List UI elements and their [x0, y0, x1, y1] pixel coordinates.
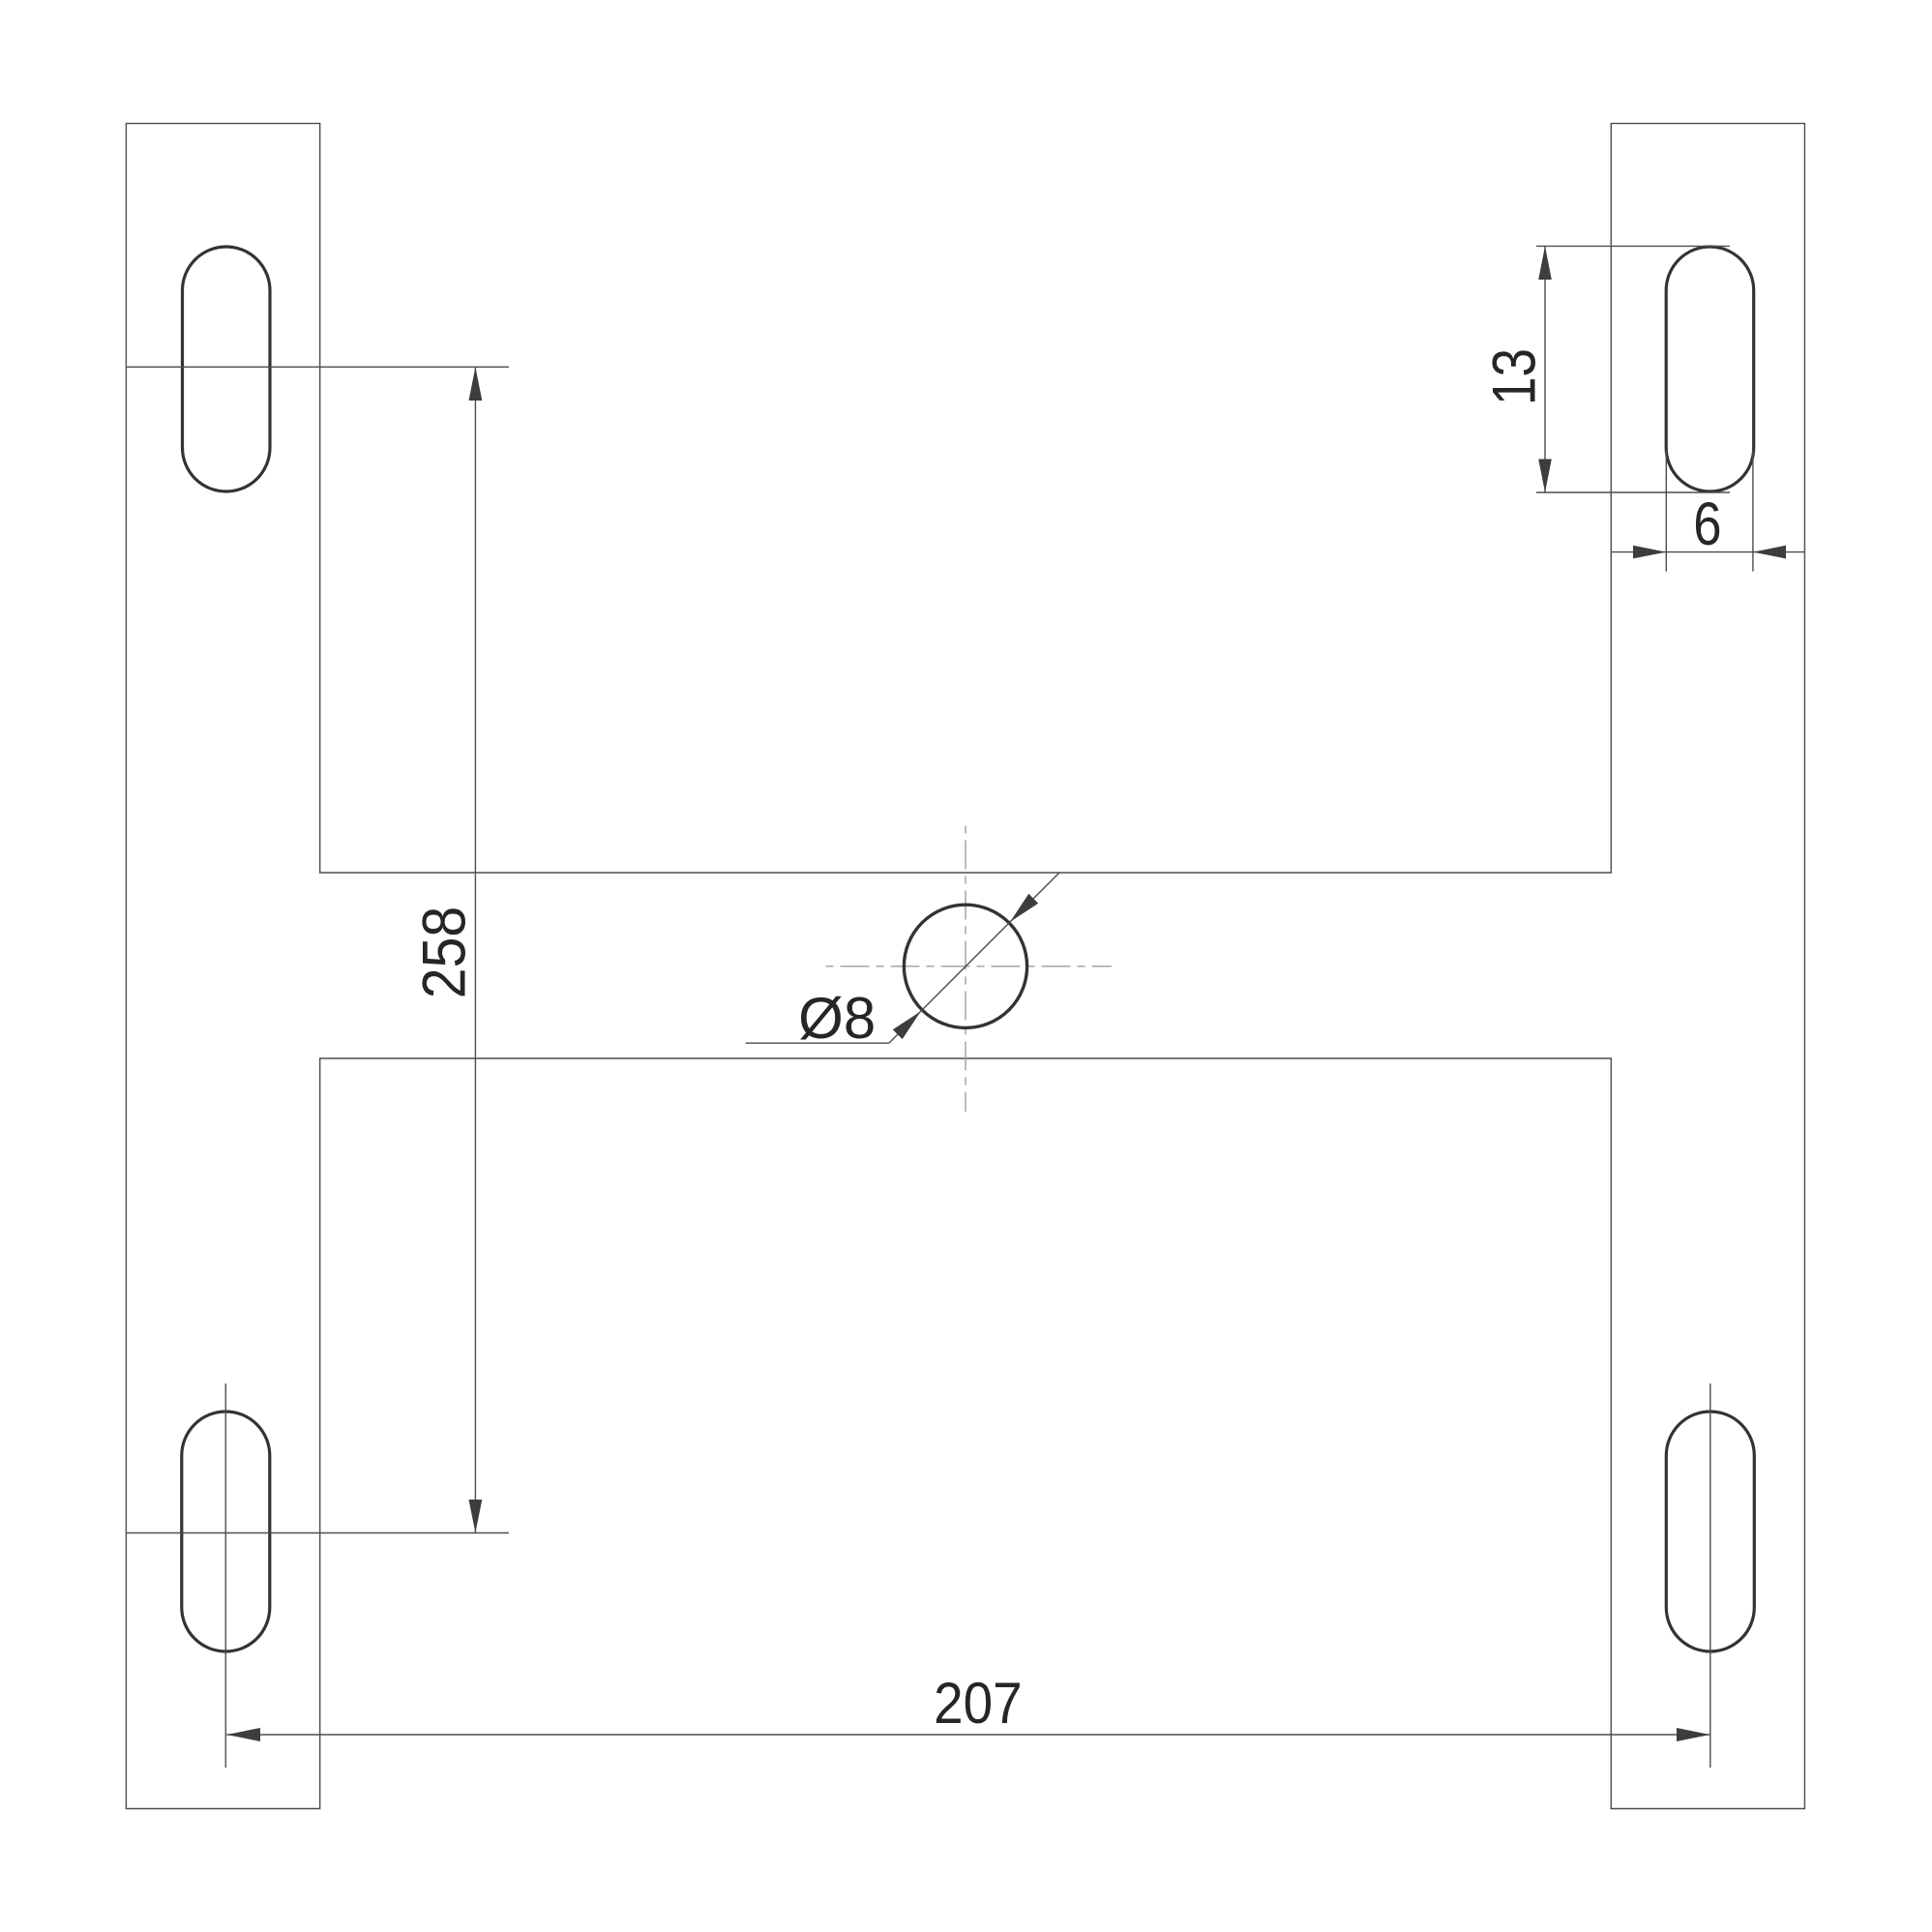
svg-text:258: 258 — [411, 907, 479, 998]
svg-text:6: 6 — [1693, 490, 1721, 558]
svg-text:Ø8: Ø8 — [798, 986, 876, 1051]
svg-text:207: 207 — [934, 1670, 1023, 1736]
svg-text:13: 13 — [1481, 348, 1549, 405]
